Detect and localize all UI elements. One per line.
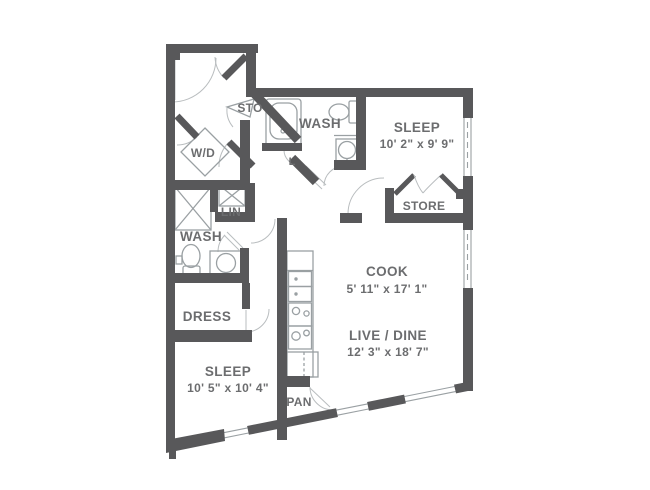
- cook-dims: 5' 11" x 17' 1": [347, 282, 428, 296]
- kitchen-counter: [287, 251, 318, 377]
- wd-label: W/D: [191, 146, 215, 160]
- floor-plan-page: STO WASH L SLEEP 10' 2" x 9' 9" STORE W/…: [0, 0, 650, 490]
- hall-door-arc: [219, 142, 229, 167]
- lin-label: LIN: [221, 205, 241, 219]
- wall-diagonal-hall: [292, 158, 316, 182]
- wall-store-corner: [456, 189, 473, 199]
- shower: [175, 187, 211, 230]
- wall-bottom-seg-2: [367, 395, 406, 411]
- wall-right-3: [463, 288, 473, 391]
- wall-jog: [246, 44, 256, 93]
- store-label: STORE: [403, 199, 446, 213]
- entry-closet-door-arc: [172, 58, 216, 102]
- floor-plan: STO WASH L SLEEP 10' 2" x 9' 9" STORE W/…: [0, 0, 650, 490]
- cook-label: COOK: [366, 264, 408, 279]
- sleep-lower-dims: 10' 5" x 10' 4": [187, 381, 269, 395]
- live-dine-label: LIVE / DINE: [349, 328, 427, 343]
- dress-door-arc: [246, 309, 269, 332]
- wall-top-main: [246, 88, 473, 97]
- wd-door-leaf: [177, 116, 197, 137]
- toilet-lower: [176, 245, 200, 277]
- wall-lin-left: [210, 184, 218, 212]
- sleep-upper-door-arc: [348, 178, 384, 214]
- wash-lower-label: WASH: [180, 229, 222, 244]
- wall-wash-sleep-divider: [356, 97, 366, 170]
- sto-door-arc: [227, 108, 233, 127]
- l-closet-label: L: [289, 156, 296, 168]
- wall-below-wd: [166, 180, 250, 190]
- wall-store-bottom: [385, 213, 473, 223]
- pantry-label: PAN: [286, 395, 311, 409]
- window-sleep-upper: [464, 118, 471, 176]
- wall-store-left: [385, 188, 394, 213]
- wall-below-sink: [334, 160, 366, 170]
- wash-upper-label: WASH: [299, 116, 341, 131]
- live-dine-dims: 12' 3" x 18' 7": [347, 345, 429, 359]
- wall-right-1: [463, 88, 473, 118]
- window-live-dine-right: [464, 230, 471, 288]
- window-live-dine-bottom-2: [337, 404, 369, 415]
- sleep-upper-label: SLEEP: [394, 120, 440, 135]
- corridor-door-arc: [251, 219, 275, 243]
- wall-left: [166, 44, 175, 444]
- sto-label: STO: [237, 101, 262, 115]
- wall-dress-bottom: [166, 330, 252, 342]
- dress-label: DRESS: [183, 309, 232, 324]
- kitchen-sink: [289, 272, 312, 302]
- bifold-doors: [395, 175, 460, 194]
- wall-wash-lower-bottom: [166, 273, 247, 283]
- wall-corridor-stub: [340, 213, 362, 223]
- wall-bottom-tick: [169, 450, 176, 459]
- wall-tub-bottom: [262, 143, 302, 151]
- window-live-dine-bottom-1: [405, 387, 456, 402]
- wall-bottom-seg-3: [247, 408, 338, 435]
- wall-dress-right: [242, 283, 250, 309]
- sleep-lower-label: SLEEP: [205, 364, 251, 379]
- range: [289, 303, 312, 349]
- sleep-upper-dims: 10' 2" x 9' 9": [380, 137, 455, 151]
- entry-door-leaf: [224, 56, 246, 78]
- wall-pantry-top: [282, 376, 310, 387]
